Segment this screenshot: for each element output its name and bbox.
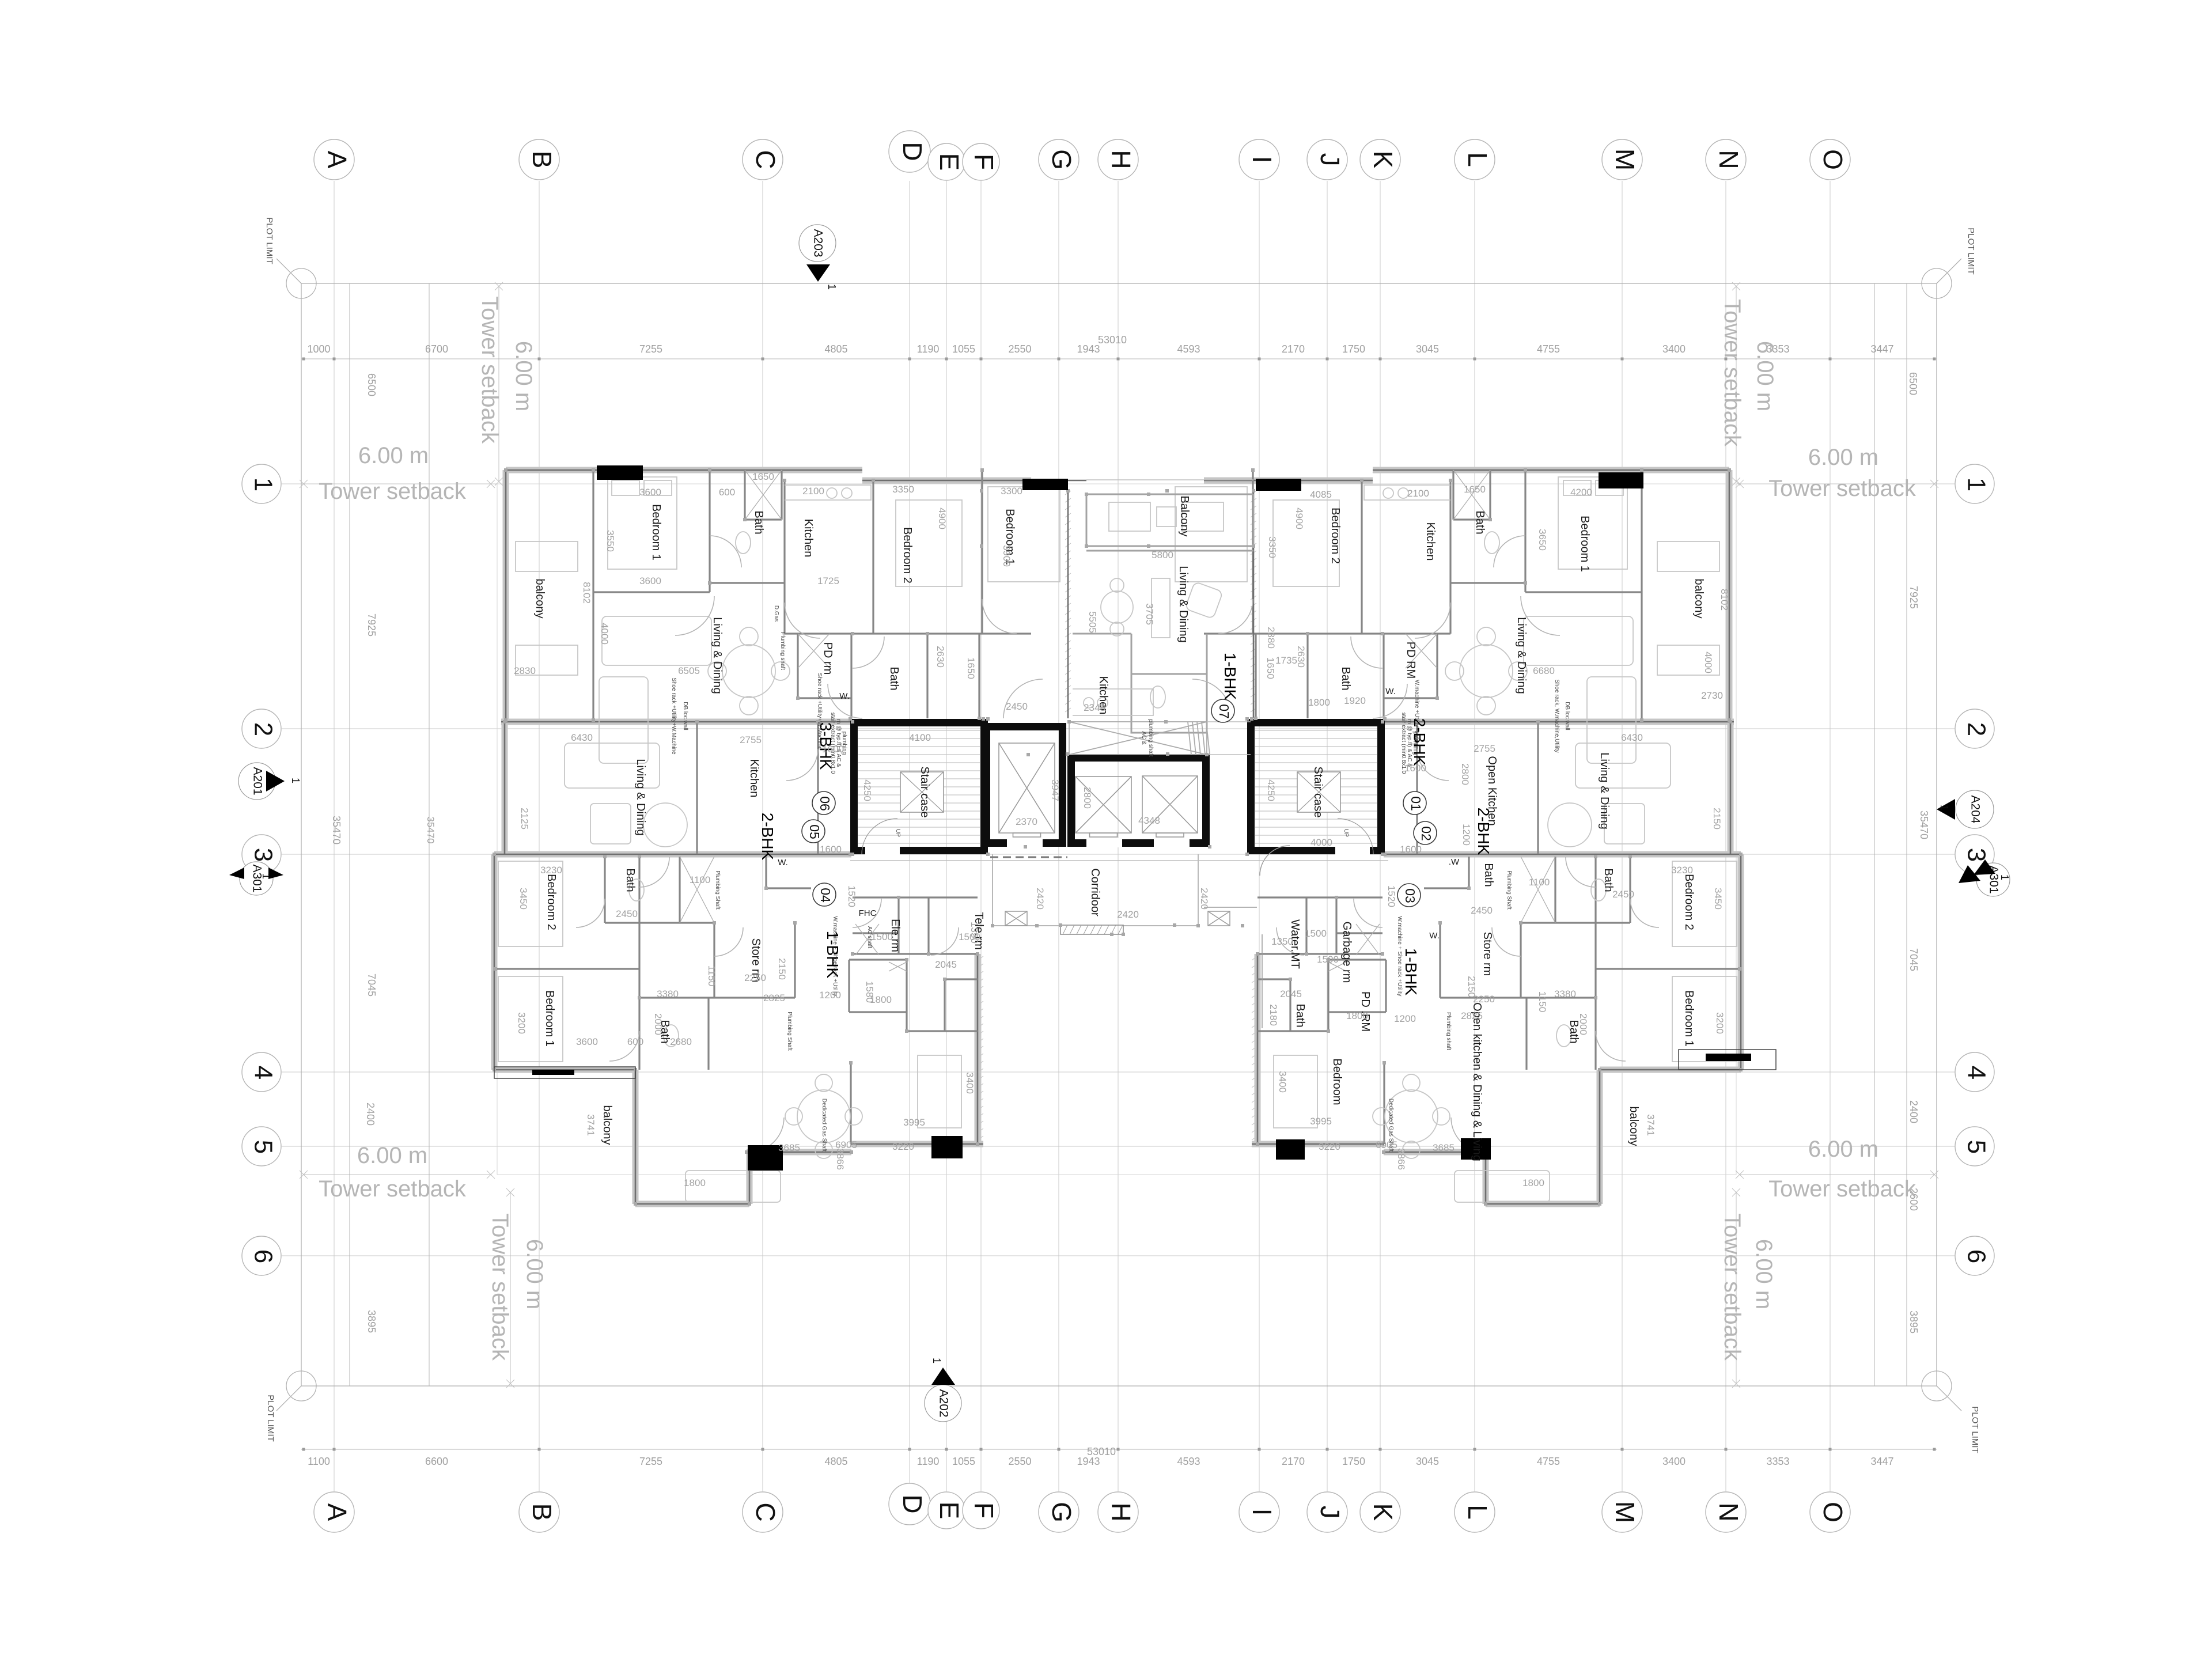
svg-text:2380: 2380 — [1266, 627, 1277, 649]
svg-text:7925: 7925 — [1908, 586, 1919, 609]
svg-text:.W: .W — [1449, 857, 1460, 867]
svg-text:Shoe rack, W.machine,Utility: Shoe rack, W.machine,Utility — [1554, 679, 1560, 752]
svg-text:Tower setback: Tower setback — [1719, 1213, 1745, 1361]
svg-text:O: O — [1818, 1502, 1848, 1522]
svg-text:1150: 1150 — [706, 965, 717, 987]
svg-text:6500: 6500 — [366, 373, 377, 396]
svg-text:L: L — [1463, 1505, 1493, 1520]
svg-text:3380: 3380 — [1554, 988, 1576, 999]
svg-text:1600: 1600 — [820, 844, 842, 855]
svg-text:2825: 2825 — [763, 993, 785, 1003]
svg-text:PLOT LIMIT: PLOT LIMIT — [1970, 1406, 1980, 1453]
svg-text:W.: W. — [839, 691, 850, 701]
svg-text:1350: 1350 — [1271, 936, 1293, 947]
svg-text:1200: 1200 — [819, 990, 841, 1001]
svg-text:J: J — [1315, 1506, 1345, 1519]
svg-text:C: C — [751, 150, 781, 169]
svg-text:2170: 2170 — [1282, 1456, 1305, 1467]
svg-text:W.: W. — [1429, 931, 1440, 941]
svg-text:Plumbing shaft: Plumbing shaft — [1445, 1012, 1452, 1050]
svg-text:4250: 4250 — [862, 779, 873, 801]
svg-text:4000: 4000 — [1703, 652, 1714, 673]
svg-text:4085: 4085 — [1310, 489, 1332, 500]
svg-text:PLOT LIMIT: PLOT LIMIT — [1966, 228, 1976, 274]
svg-text:2100: 2100 — [802, 486, 824, 497]
svg-text:4000: 4000 — [599, 623, 610, 645]
svg-text:3895: 3895 — [1908, 1310, 1919, 1334]
svg-text:2: 2 — [249, 722, 277, 736]
svg-text:8102: 8102 — [581, 582, 592, 604]
svg-text:1150: 1150 — [1537, 991, 1548, 1013]
svg-text:3650: 3650 — [1537, 529, 1548, 551]
svg-text:J: J — [1315, 153, 1345, 166]
svg-text:Bath: Bath — [752, 510, 765, 534]
svg-text:plumbing shaft: plumbing shaft — [1147, 719, 1154, 756]
svg-text:6.00 m: 6.00 m — [357, 1143, 427, 1168]
svg-text:3200: 3200 — [1714, 1012, 1725, 1034]
svg-text:A202: A202 — [937, 1389, 950, 1417]
svg-text:Store rm: Store rm — [1481, 932, 1494, 976]
svg-text:2150: 2150 — [777, 958, 787, 980]
svg-text:4593: 4593 — [1177, 343, 1200, 355]
svg-text:6.00 m: 6.00 m — [511, 341, 536, 411]
svg-text:05: 05 — [807, 824, 822, 839]
svg-text:3866: 3866 — [1396, 1148, 1407, 1170]
svg-text:3995: 3995 — [1310, 1116, 1332, 1127]
svg-text:Tower setback: Tower setback — [319, 479, 467, 504]
svg-text:6500: 6500 — [1907, 372, 1919, 395]
svg-text:4: 4 — [1962, 1066, 1990, 1080]
svg-text:5: 5 — [1962, 1140, 1990, 1154]
svg-text:53010: 53010 — [1098, 334, 1127, 346]
svg-text:7255: 7255 — [639, 343, 662, 355]
svg-text:7255: 7255 — [639, 1456, 662, 1467]
svg-text:1200: 1200 — [1461, 824, 1472, 846]
svg-text:Shoe rack +Utility+W.Machine: Shoe rack +Utility+W.Machine — [671, 677, 677, 755]
svg-text:1100: 1100 — [1529, 877, 1550, 888]
svg-text:G: G — [1047, 1502, 1077, 1522]
svg-text:3220: 3220 — [1319, 1141, 1340, 1152]
svg-text:1725: 1725 — [817, 575, 839, 586]
svg-text:6.00 m: 6.00 m — [1751, 1239, 1777, 1309]
svg-text:Garbage rm: Garbage rm — [1340, 922, 1353, 983]
svg-text:Bedroom 2: Bedroom 2 — [1683, 874, 1695, 930]
svg-text:2150: 2150 — [1711, 808, 1722, 829]
svg-text:4000: 4000 — [1310, 837, 1332, 848]
svg-text:H: H — [1106, 1502, 1136, 1521]
svg-text:AC &: AC & — [1141, 731, 1147, 745]
svg-text:PD rm: PD rm — [821, 642, 834, 675]
svg-text:1600: 1600 — [1404, 763, 1426, 774]
svg-text:Kitchen: Kitchen — [1424, 522, 1437, 561]
svg-text:3550: 3550 — [605, 530, 616, 552]
svg-text:3600: 3600 — [639, 487, 661, 498]
svg-text:5800: 5800 — [1152, 550, 1173, 560]
svg-text:6.00 m: 6.00 m — [1808, 1137, 1878, 1162]
svg-text:M: M — [1610, 1501, 1640, 1523]
svg-text:1: 1 — [931, 1358, 942, 1363]
svg-text:2800: 2800 — [1460, 763, 1471, 785]
svg-text:4900: 4900 — [937, 507, 948, 529]
svg-text:1-BHK: 1-BHK — [1402, 948, 1420, 996]
svg-text:2250: 2250 — [744, 972, 766, 983]
svg-text:Bath: Bath — [1474, 510, 1486, 534]
svg-text:Dedicated Gas Shaft: Dedicated Gas Shaft — [821, 1099, 827, 1152]
svg-text:DB loc.wall: DB loc.wall — [682, 702, 688, 730]
svg-text:3045: 3045 — [1416, 1456, 1439, 1467]
svg-text:1735: 1735 — [1275, 655, 1297, 666]
svg-text:1: 1 — [1962, 478, 1990, 491]
svg-text:3353: 3353 — [1766, 1456, 1789, 1467]
svg-text:2800: 2800 — [1082, 787, 1093, 809]
svg-text:2400: 2400 — [365, 1103, 376, 1126]
svg-text:3450: 3450 — [518, 888, 529, 910]
svg-text:B: B — [527, 151, 557, 169]
svg-text:1100: 1100 — [690, 874, 711, 885]
svg-text:A204: A204 — [1968, 795, 1982, 823]
svg-text:1750: 1750 — [1342, 343, 1365, 355]
svg-text:600: 600 — [719, 487, 735, 498]
svg-text:1650: 1650 — [752, 471, 774, 482]
svg-text:1650: 1650 — [1265, 657, 1276, 679]
svg-text:4200: 4200 — [1570, 487, 1592, 498]
svg-text:1: 1 — [290, 778, 301, 783]
svg-text:2170: 2170 — [1282, 343, 1305, 355]
svg-text:4593: 4593 — [1177, 1456, 1200, 1467]
svg-text:2450: 2450 — [1006, 701, 1028, 712]
svg-text:3685: 3685 — [778, 1142, 800, 1153]
svg-text:Living & Dining: Living & Dining — [634, 759, 647, 835]
svg-text:2755: 2755 — [1474, 743, 1495, 754]
svg-text:6600: 6600 — [425, 1456, 448, 1467]
svg-text:Bath: Bath — [1482, 863, 1495, 887]
svg-text:A201: A201 — [251, 767, 264, 795]
svg-text:1055: 1055 — [952, 343, 975, 355]
svg-text:2550: 2550 — [1008, 1456, 1031, 1467]
svg-text:Bedroom: Bedroom — [1331, 1058, 1343, 1105]
svg-text:3: 3 — [249, 848, 277, 862]
svg-text:3350: 3350 — [892, 484, 914, 495]
svg-text:Plumbing Shaft: Plumbing Shaft — [714, 870, 721, 910]
svg-text:1-BHK: 1-BHK — [1221, 653, 1239, 700]
svg-text:Open kitchen & Dining & Living: Open kitchen & Dining & Living — [1471, 1002, 1483, 1161]
svg-text:2: 2 — [1962, 722, 1990, 736]
svg-text:2450: 2450 — [1471, 905, 1493, 916]
svg-text:1-BHK: 1-BHK — [824, 931, 842, 979]
svg-text:PD RM: PD RM — [1404, 642, 1417, 679]
svg-text:2180: 2180 — [1268, 1004, 1279, 1026]
svg-text:Living & Dining: Living & Dining — [1515, 617, 1528, 694]
svg-text:C: C — [751, 1502, 781, 1521]
svg-text:Bath: Bath — [1294, 1003, 1306, 1027]
svg-text:Bedroom 1: Bedroom 1 — [650, 504, 662, 560]
svg-text:3995: 3995 — [903, 1117, 925, 1128]
svg-text:L: L — [1463, 152, 1493, 167]
svg-text:M: M — [1610, 149, 1640, 171]
svg-text:2125: 2125 — [519, 808, 530, 829]
svg-text:K: K — [1368, 1503, 1398, 1521]
svg-text:Bath: Bath — [1339, 666, 1352, 690]
svg-text:D: D — [897, 1494, 927, 1513]
svg-text:Balcony: Balcony — [1178, 495, 1191, 536]
svg-text:2420: 2420 — [1035, 888, 1046, 910]
svg-text:2825: 2825 — [1461, 1010, 1483, 1021]
svg-text:A: A — [322, 1503, 352, 1521]
svg-text:W.: W. — [778, 858, 788, 868]
svg-text:1943: 1943 — [1077, 343, 1100, 355]
svg-text:1520: 1520 — [846, 885, 857, 907]
svg-text:Living & Dining: Living & Dining — [1177, 566, 1190, 642]
svg-text:1200: 1200 — [1394, 1013, 1416, 1024]
svg-text:D: D — [897, 142, 927, 161]
svg-text:3741: 3741 — [1645, 1114, 1656, 1136]
svg-text:7045: 7045 — [366, 974, 377, 997]
svg-text:1: 1 — [1999, 874, 2010, 880]
svg-text:1190: 1190 — [917, 343, 940, 355]
svg-text:3400: 3400 — [1662, 1456, 1685, 1467]
svg-text:PLOT LIMIT: PLOT LIMIT — [264, 217, 274, 264]
svg-text:5: 5 — [249, 1140, 277, 1154]
svg-text:2420: 2420 — [1199, 888, 1210, 910]
svg-text:Bedroom 2: Bedroom 2 — [901, 527, 914, 584]
svg-text:G: G — [1047, 149, 1077, 170]
svg-text:2420: 2420 — [1117, 909, 1139, 920]
svg-text:Bedroom 2: Bedroom 2 — [1329, 507, 1342, 564]
svg-text:35470: 35470 — [425, 816, 436, 843]
svg-text:35470: 35470 — [1918, 810, 1930, 839]
svg-text:1800: 1800 — [1522, 1177, 1544, 1188]
svg-text:2-BHK: 2-BHK — [1411, 718, 1429, 766]
svg-text:6505: 6505 — [678, 665, 700, 676]
svg-text:I: I — [1247, 1509, 1277, 1516]
svg-text:2830: 2830 — [514, 665, 536, 676]
svg-text:2370: 2370 — [1016, 816, 1037, 827]
svg-text:Plumbing shaft: Plumbing shaft — [779, 632, 786, 670]
svg-text:1500: 1500 — [1305, 928, 1327, 939]
svg-text:Bedroom 1: Bedroom 1 — [1578, 516, 1591, 572]
svg-text:1500: 1500 — [1317, 954, 1339, 965]
svg-text:6430: 6430 — [1621, 732, 1643, 743]
svg-text:3685: 3685 — [1433, 1142, 1455, 1153]
svg-text:3045: 3045 — [1416, 343, 1439, 355]
svg-text:Plumbing Shaft: Plumbing Shaft — [1506, 870, 1512, 910]
svg-text:1800: 1800 — [684, 1177, 706, 1188]
svg-text:01: 01 — [1408, 796, 1423, 811]
svg-text:balcony: balcony — [1627, 1107, 1640, 1146]
svg-text:6700: 6700 — [425, 343, 448, 355]
svg-text:3900: 3900 — [1001, 545, 1012, 567]
svg-text:06: 06 — [817, 796, 832, 811]
svg-text:DB loc.wall: DB loc.wall — [1564, 702, 1570, 730]
svg-text:03: 03 — [1403, 888, 1418, 903]
svg-text:B: B — [527, 1503, 557, 1521]
svg-text:6.00 m: 6.00 m — [522, 1239, 547, 1309]
svg-text:W.: W. — [1385, 687, 1396, 696]
svg-text:07: 07 — [1217, 704, 1232, 719]
svg-text:2630: 2630 — [935, 646, 946, 668]
svg-text:4755: 4755 — [1537, 343, 1560, 355]
svg-text:3400: 3400 — [964, 1072, 975, 1094]
svg-text:Tower setback: Tower setback — [1768, 1176, 1916, 1202]
svg-text:3350: 3350 — [1267, 536, 1278, 558]
svg-text:6905: 6905 — [1376, 1139, 1397, 1150]
svg-text:02: 02 — [1419, 826, 1434, 841]
svg-text:2680: 2680 — [670, 1036, 692, 1047]
svg-text:5505: 5505 — [1087, 611, 1098, 633]
svg-text:4805: 4805 — [824, 1456, 847, 1467]
svg-text:E: E — [934, 153, 964, 171]
svg-text:A203: A203 — [811, 229, 824, 257]
svg-text:2550: 2550 — [1008, 343, 1031, 355]
svg-text:O: O — [1818, 149, 1848, 170]
svg-text:3705: 3705 — [1144, 603, 1155, 625]
svg-text:1: 1 — [249, 478, 277, 491]
svg-text:Kitchen: Kitchen — [748, 759, 760, 798]
svg-text:1650: 1650 — [965, 657, 976, 679]
svg-text:Stair case: Stair case — [1312, 767, 1324, 818]
svg-text:1750: 1750 — [1342, 1456, 1365, 1467]
svg-text:35470: 35470 — [331, 816, 342, 844]
svg-text:1943: 1943 — [1077, 1456, 1100, 1467]
svg-text:2-BHK: 2-BHK — [759, 813, 777, 861]
svg-text:PLOT LIMIT: PLOT LIMIT — [266, 1395, 275, 1441]
svg-text:Plumbing Shaft: Plumbing Shaft — [786, 1012, 793, 1051]
svg-text:Bath: Bath — [888, 666, 900, 690]
svg-text:UP: UP — [1343, 829, 1349, 837]
svg-text:3300: 3300 — [1001, 486, 1022, 497]
svg-text:H: H — [1106, 150, 1136, 169]
svg-text:balcony: balcony — [601, 1105, 613, 1145]
svg-text:2450: 2450 — [616, 908, 638, 919]
svg-text:2045: 2045 — [1280, 988, 1302, 999]
svg-text:Tower setback: Tower setback — [1719, 299, 1745, 447]
svg-text:3400: 3400 — [1662, 343, 1685, 355]
svg-text:6430: 6430 — [571, 732, 593, 743]
svg-text:4250: 4250 — [1266, 779, 1277, 801]
svg-text:UP: UP — [895, 829, 901, 837]
svg-text:2348: 2348 — [1084, 702, 1105, 713]
svg-text:A: A — [322, 151, 352, 169]
svg-text:FHC: FHC — [859, 908, 877, 918]
svg-text:2755: 2755 — [740, 734, 762, 745]
svg-text:3400: 3400 — [1277, 1071, 1288, 1093]
svg-text:I: I — [1247, 156, 1277, 164]
svg-text:2045: 2045 — [935, 959, 957, 970]
svg-text:Bedroom 2: Bedroom 2 — [545, 874, 558, 930]
svg-text:4100: 4100 — [909, 732, 931, 743]
svg-text:Tower setback: Tower setback — [1768, 476, 1916, 501]
svg-text:4900: 4900 — [1294, 507, 1305, 529]
svg-text:3447: 3447 — [1870, 343, 1893, 355]
svg-text:1: 1 — [1938, 805, 1950, 810]
svg-text:3447: 3447 — [1870, 1456, 1893, 1467]
svg-text:Living & Dining: Living & Dining — [711, 617, 724, 694]
svg-text:1100: 1100 — [308, 1456, 330, 1467]
svg-text:N: N — [1714, 1502, 1744, 1521]
svg-text:1580: 1580 — [864, 981, 875, 1003]
svg-text:6.00 m: 6.00 m — [358, 443, 429, 468]
svg-text:Kitchen: Kitchen — [802, 519, 815, 558]
svg-text:3866: 3866 — [835, 1148, 846, 1170]
svg-text:04: 04 — [818, 888, 833, 903]
svg-text:F: F — [969, 154, 999, 170]
svg-text:2000: 2000 — [1578, 1013, 1589, 1035]
svg-text:2000: 2000 — [653, 1013, 664, 1035]
svg-text:3230: 3230 — [1671, 865, 1693, 876]
svg-text:1800: 1800 — [1308, 697, 1330, 708]
svg-text:4755: 4755 — [1537, 1456, 1560, 1467]
svg-text:1500: 1500 — [871, 931, 893, 942]
svg-text:6.00 m: 6.00 m — [1808, 445, 1878, 470]
svg-text:1000: 1000 — [307, 343, 330, 355]
svg-text:6680: 6680 — [1533, 665, 1555, 676]
svg-text:Bedroom 1: Bedroom 1 — [1683, 990, 1695, 1047]
svg-text:1055: 1055 — [952, 1456, 975, 1467]
svg-text:4348: 4348 — [1138, 815, 1160, 826]
svg-text:3600: 3600 — [639, 575, 661, 586]
svg-text:3741: 3741 — [585, 1114, 596, 1136]
svg-text:Tower setback: Tower setback — [319, 1176, 467, 1202]
svg-text:3450: 3450 — [1713, 888, 1724, 910]
svg-text:1920: 1920 — [1344, 695, 1366, 706]
svg-text:3: 3 — [1962, 848, 1990, 862]
svg-text:3600: 3600 — [576, 1036, 598, 1047]
svg-text:1520: 1520 — [1386, 885, 1397, 907]
svg-text:2-BHK: 2-BHK — [1475, 808, 1493, 855]
svg-text:1: 1 — [826, 284, 838, 290]
svg-text:W.machine + Shoe rack +Utility: W.machine + Shoe rack +Utility — [1396, 916, 1403, 997]
svg-text:4: 4 — [249, 1066, 277, 1080]
svg-text:3200: 3200 — [516, 1012, 527, 1034]
svg-text:2100: 2100 — [1407, 488, 1429, 499]
svg-text:Bedroom 1: Bedroom 1 — [543, 990, 556, 1047]
svg-text:2450: 2450 — [1612, 889, 1634, 900]
svg-text:Tower setback: Tower setback — [487, 1213, 513, 1361]
svg-text:Stair case: Stair case — [918, 767, 931, 818]
svg-text:600: 600 — [627, 1036, 643, 1047]
svg-text:3220: 3220 — [892, 1141, 914, 1152]
svg-text:balcony: balcony — [1692, 579, 1705, 619]
svg-text:1650: 1650 — [1464, 484, 1486, 495]
svg-text:4805: 4805 — [824, 343, 847, 355]
svg-text:1600: 1600 — [1400, 844, 1422, 855]
svg-text:N: N — [1714, 150, 1744, 169]
svg-text:3895: 3895 — [366, 1310, 377, 1333]
svg-text:Bath: Bath — [624, 868, 637, 892]
svg-text:E: E — [934, 1502, 964, 1520]
svg-text:2150: 2150 — [1466, 976, 1477, 998]
svg-text:3947: 3947 — [1050, 779, 1060, 801]
svg-text:D.Gas: D.Gas — [773, 605, 779, 622]
svg-text:3230: 3230 — [540, 865, 562, 876]
svg-text:6.00 m: 6.00 m — [1752, 341, 1778, 411]
svg-text:1350: 1350 — [969, 922, 980, 944]
svg-text:7045: 7045 — [1908, 948, 1919, 971]
svg-text:1800: 1800 — [1346, 1010, 1368, 1021]
svg-text:6: 6 — [249, 1249, 277, 1263]
svg-text:2630: 2630 — [1296, 646, 1306, 668]
svg-text:K: K — [1368, 151, 1398, 169]
svg-text:8102: 8102 — [1719, 589, 1730, 611]
svg-text:2730: 2730 — [1701, 690, 1723, 701]
svg-text:6: 6 — [1962, 1249, 1990, 1263]
svg-text:balcony: balcony — [533, 579, 546, 619]
svg-text:53010: 53010 — [1087, 1446, 1116, 1457]
svg-text:F: F — [969, 1502, 999, 1518]
svg-text:1190: 1190 — [917, 1456, 940, 1467]
svg-text:1600: 1600 — [822, 744, 844, 755]
svg-text:Living & Dining: Living & Dining — [1598, 752, 1611, 829]
